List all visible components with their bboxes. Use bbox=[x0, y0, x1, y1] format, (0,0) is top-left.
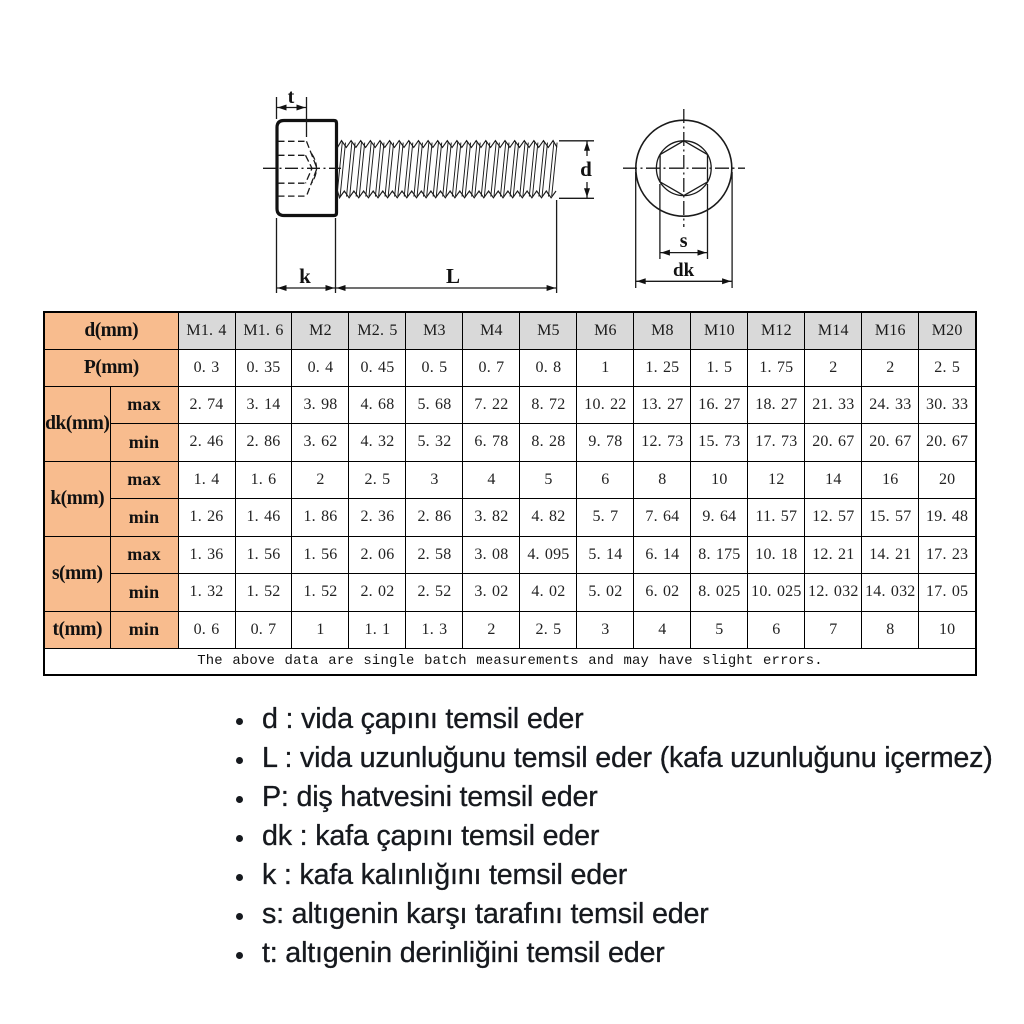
svg-text:s: s bbox=[680, 230, 688, 252]
svg-text:d: d bbox=[580, 157, 592, 181]
svg-text:k: k bbox=[299, 264, 311, 288]
svg-text:L: L bbox=[446, 264, 460, 288]
svg-text:dk: dk bbox=[673, 260, 695, 281]
svg-text:t: t bbox=[288, 86, 295, 108]
